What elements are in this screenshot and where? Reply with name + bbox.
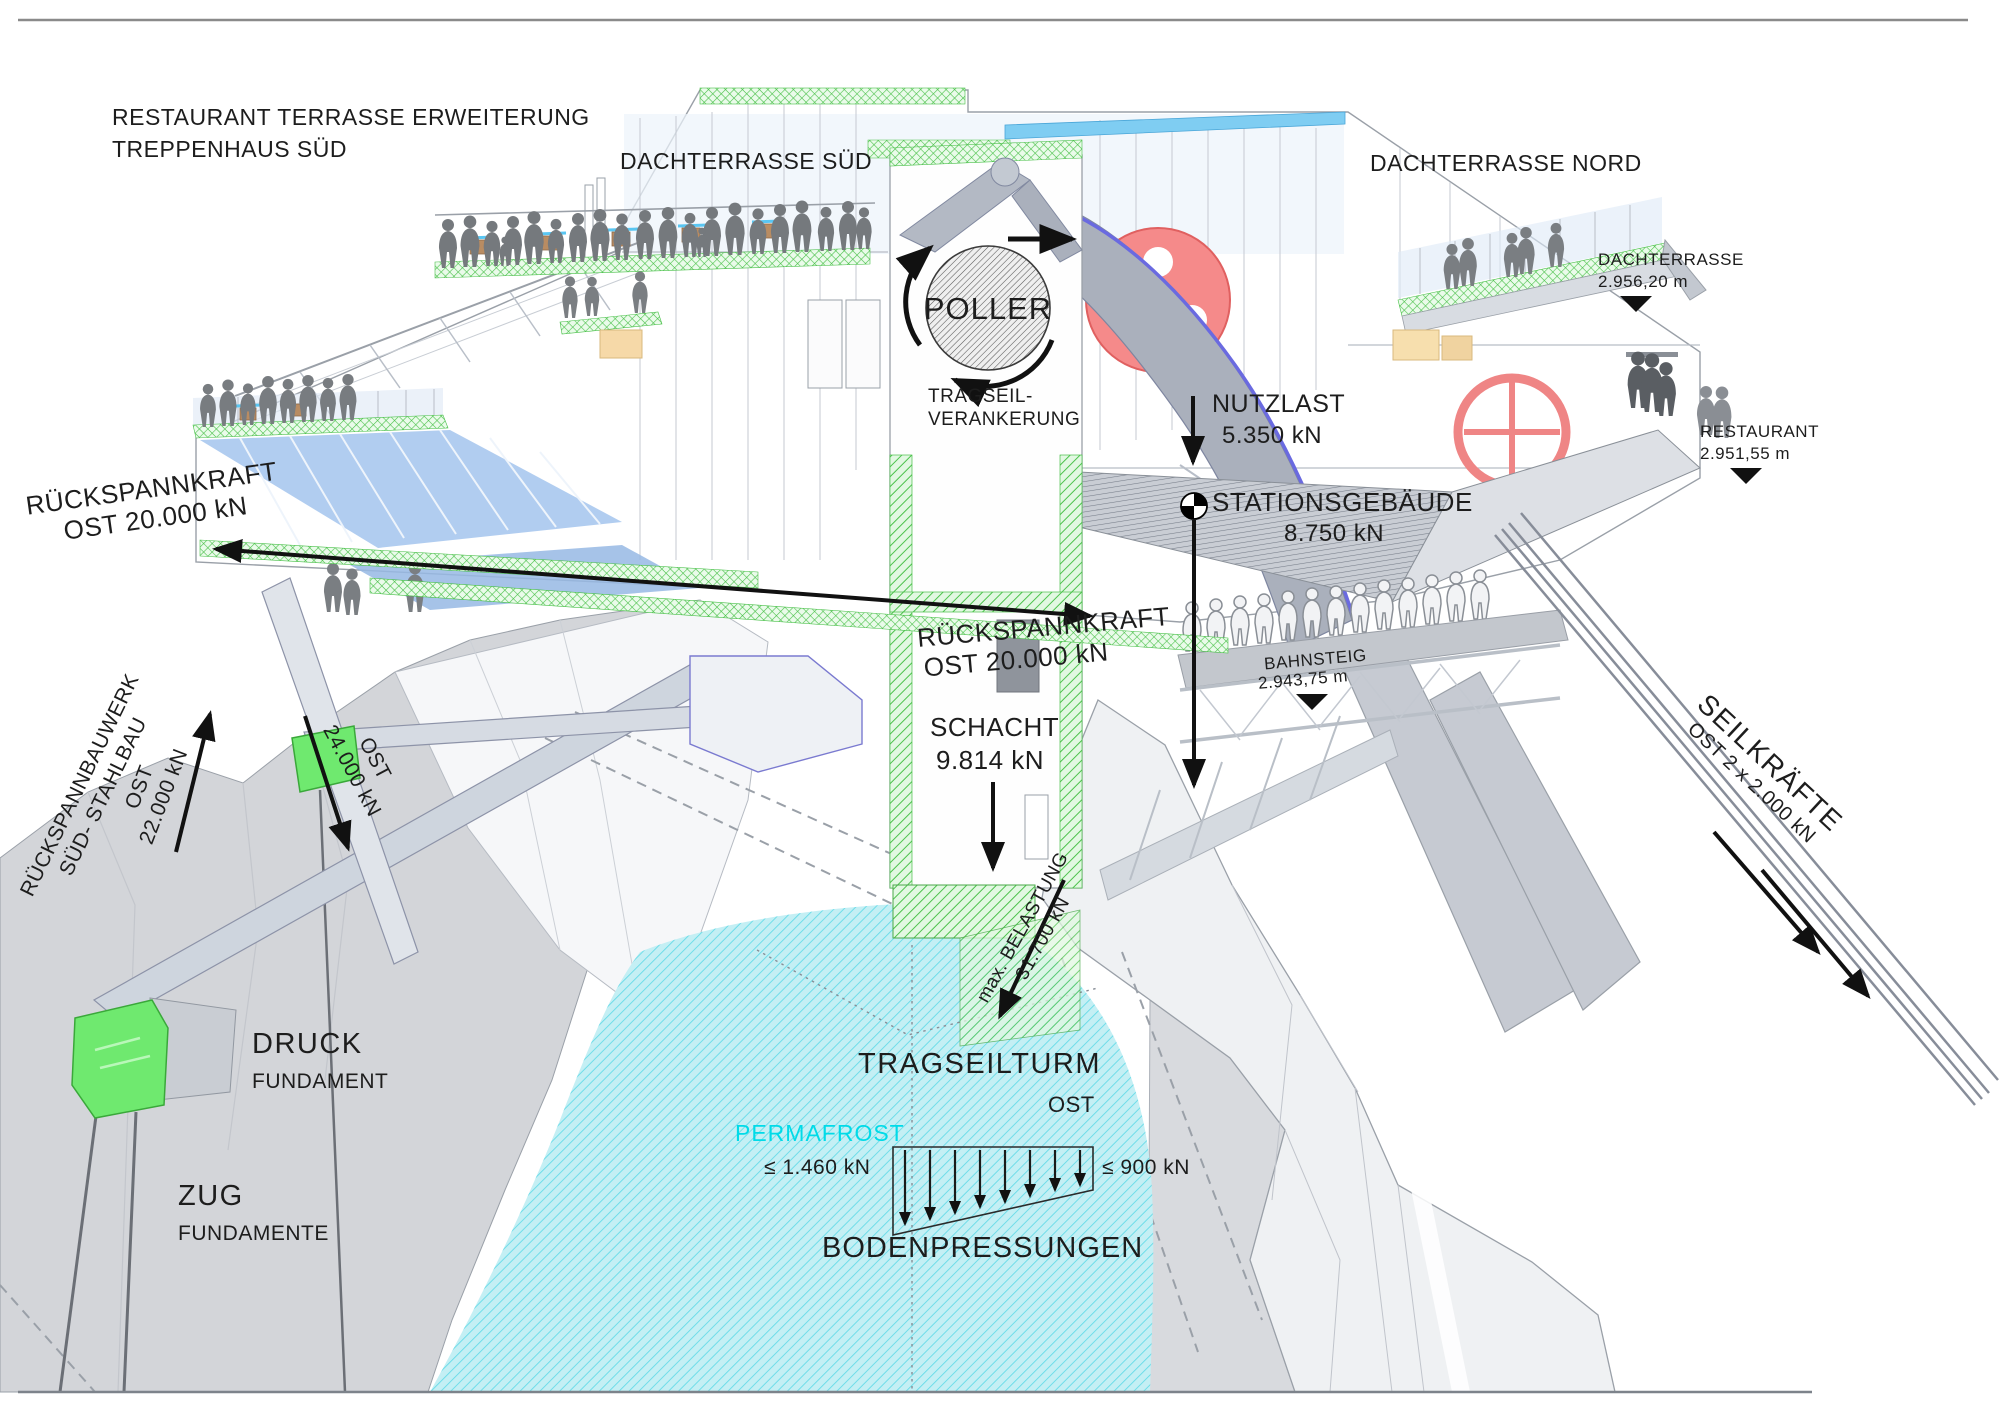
chimney (585, 185, 593, 263)
label-stationsgebaeude: STATIONSGEBÄUDE (1212, 488, 1473, 518)
label-bodenpressungen: BODENPRESSUNGEN (822, 1232, 1143, 1265)
tower-wall-right (1060, 455, 1082, 888)
lower-cable-bands (1340, 635, 1640, 1032)
label-dachterrasse-elev: 2.956,20 m (1598, 272, 1688, 292)
zug-foundation-pad (72, 1000, 168, 1118)
label-pressure-right: ≤ 900 kN (1102, 1156, 1190, 1180)
label-schacht-value: 9.814 kN (936, 746, 1044, 776)
label-schacht: SCHACHT (930, 713, 1059, 743)
label-permafrost: PERMAFROST (735, 1120, 905, 1146)
label-dachterrasse-sued: DACHTERRASSE SÜD (620, 148, 872, 174)
label-dachterrasse-nord: DACHTERRASSE NORD (1370, 150, 1642, 176)
tower-wall-left (890, 455, 912, 888)
label-restaurant-elev: 2.951,55 m (1700, 444, 1790, 464)
label-tragseilturm: TRAGSEILTURM (858, 1048, 1101, 1081)
label-nutzlast: NUTZLAST (1212, 390, 1345, 419)
label-druck-sub: FUNDAMENT (252, 1070, 388, 1094)
label-nutzlast-value: 5.350 kN (1222, 422, 1322, 450)
label-restaurant-terrasse: RESTAURANT TERRASSE ERWEITERUNG (112, 104, 590, 130)
label-poller: POLLER (920, 291, 1056, 327)
furniture-nord (1393, 330, 1439, 360)
label-stationsgebaeude-value: 8.750 kN (1284, 520, 1384, 548)
label-restaurant-marker: RESTAURANT (1700, 422, 1819, 442)
label-zug: ZUG (178, 1180, 244, 1213)
cog-symbol (1181, 493, 1207, 519)
crate (600, 330, 642, 358)
label-druck: DRUCK (252, 1028, 363, 1061)
tower-window (1025, 795, 1048, 859)
label-tragseilturm-ost: OST (1048, 1092, 1095, 1117)
label-tragseil-1: TRAGSEIL- (928, 386, 1033, 408)
section-diagram: RESTAURANT TERRASSE ERWEITERUNG TREPPENH… (0, 0, 2000, 1414)
label-treppenhaus-sued: TREPPENHAUS SÜD (112, 136, 347, 162)
label-pressure-left: ≤ 1.460 kN (764, 1156, 870, 1180)
label-zug-sub: FUNDAMENTE (178, 1222, 329, 1246)
track-ropes (1495, 513, 1998, 1105)
label-tragseil-2: VERANKERUNG (928, 409, 1080, 431)
roof-green-band (700, 88, 965, 104)
label-dachterrasse-marker: DACHTERRASSE (1598, 250, 1744, 270)
